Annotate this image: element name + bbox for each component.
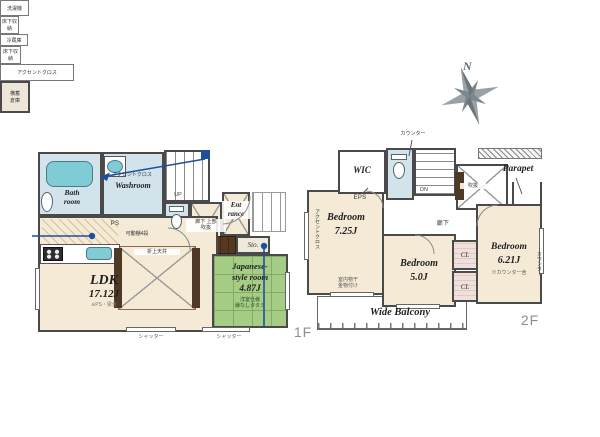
- underfloor-storage-kitchen: 床下収納: [0, 46, 21, 64]
- washroom-accent-note: アクセントクロス: [100, 172, 164, 178]
- ceiling-post-right: [192, 248, 200, 308]
- jroom-note: 洋室仕様 縁なしタタミ: [214, 297, 286, 310]
- compass-icon: [432, 58, 508, 134]
- bed1-drying-note: 室内物干 金物付け: [328, 277, 368, 290]
- bed3-counter-side-label: カウンター: [532, 234, 541, 292]
- parapet-label: Parapet: [490, 164, 546, 176]
- hall-2f-label: 廊下: [428, 221, 458, 229]
- entrance-label: Ent rance: [222, 201, 250, 219]
- floor-label-2f: 2F: [512, 312, 548, 330]
- window-ldk-west: [35, 268, 40, 310]
- bed1-name: Bedroom: [310, 212, 382, 225]
- fridge-icon: 冷蔵庫: [0, 34, 28, 46]
- bed2-name: Bedroom: [384, 258, 454, 271]
- floor-plan-canvas: Bath room 洗濯機 アクセントクロス Washroom 床下収納 UP …: [0, 0, 600, 437]
- window-bed1-balcony: [330, 292, 374, 297]
- movable-shelf-label: 可動棚4段: [114, 231, 160, 237]
- void-label: 吹抜: [460, 183, 486, 189]
- bed1-size: 7.25J: [310, 226, 382, 239]
- window-ldk-south-1: [126, 327, 176, 332]
- jroom-size: 4.87J: [214, 284, 286, 296]
- bed3-counter-note: ※カウンター含: [478, 270, 540, 276]
- bedroom-5-0: [382, 234, 456, 307]
- ldk-note: ※PS・梁含: [58, 302, 150, 308]
- shutter-label-1: シャッター: [126, 334, 176, 340]
- parapet-wall-hatch: [478, 148, 542, 159]
- window-ldk-south-2: [202, 327, 250, 332]
- ldk-name: LDK: [58, 272, 150, 290]
- floor-label-1f: 1F: [286, 324, 320, 342]
- bath-room-label: Bath room: [44, 188, 100, 207]
- kitchen-sink-icon: [86, 247, 112, 260]
- bathtub-icon: [46, 161, 93, 187]
- balcony-label: Wide Balcony: [350, 306, 450, 319]
- entrance-porch-steps: [252, 192, 286, 232]
- pipe-space-label: PS: [106, 221, 124, 229]
- washroom-label: Washroom: [102, 181, 164, 191]
- compass-north-label: N: [462, 59, 473, 73]
- wic-label: WIC: [338, 165, 386, 176]
- counter-top-label: カウンター: [390, 131, 436, 137]
- coffered-ceiling-label: 折上天井: [134, 249, 180, 255]
- bed2-size: 5.0J: [384, 272, 454, 285]
- stove-icon: [43, 247, 63, 261]
- shutter-label-2: シャッター: [204, 334, 254, 340]
- underfloor-storage-washroom: 床下収納: [0, 16, 19, 34]
- balcony-railing: [318, 323, 466, 329]
- bay-window-accent: アクセントクロス: [0, 64, 74, 81]
- closet-cl-2: CL: [452, 271, 478, 302]
- ldk-size: 17.12J: [58, 288, 150, 302]
- toilet-tank-icon-2f: [391, 154, 407, 160]
- stairs-up-label: UP: [168, 192, 188, 199]
- storage-1f-b: Sto.: [236, 236, 270, 254]
- toilet-tank-icon: [169, 206, 184, 212]
- eps-label: EPS: [346, 195, 374, 203]
- stairs-down-label: DN: [414, 187, 434, 194]
- bed3-name: Bedroom: [478, 242, 540, 254]
- bed3-size: 6.21J: [478, 255, 540, 268]
- jroom-name: Japanese- style room: [214, 261, 286, 282]
- closet-2f: 横蓄 倉庫: [0, 81, 30, 113]
- washing-machine-icon: 洗濯機: [0, 0, 29, 16]
- closet-cl-1: CL: [452, 240, 478, 270]
- hall-1f-label: 廊下 上部 吹抜: [186, 219, 226, 232]
